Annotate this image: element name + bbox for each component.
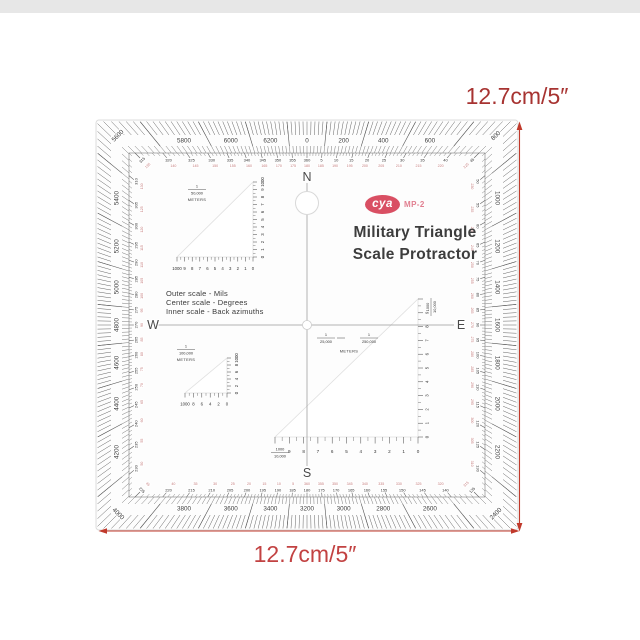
svg-text:1: 1: [196, 184, 198, 189]
svg-text:245: 245: [134, 401, 139, 408]
svg-text:350: 350: [332, 482, 338, 486]
svg-text:100,000: 100,000: [179, 351, 194, 356]
svg-text:285: 285: [134, 275, 139, 282]
svg-text:60: 60: [140, 418, 144, 422]
svg-text:180: 180: [304, 164, 310, 168]
svg-text:360: 360: [304, 482, 310, 486]
svg-text:5400: 5400: [114, 191, 121, 206]
svg-text:290: 290: [470, 382, 474, 388]
svg-text:35: 35: [420, 158, 425, 163]
east-label: E: [457, 318, 465, 332]
svg-text:280: 280: [134, 291, 139, 298]
svg-text:80: 80: [140, 352, 144, 356]
svg-text:255: 255: [470, 278, 474, 284]
svg-text:150: 150: [212, 164, 218, 168]
side-dimension-label: 12.7cm/5″: [457, 83, 577, 110]
svg-text:4800: 4800: [114, 318, 121, 333]
svg-text:METERS: METERS: [340, 349, 359, 354]
svg-text:155: 155: [230, 164, 236, 168]
svg-text:215: 215: [188, 488, 195, 493]
svg-text:145: 145: [193, 164, 199, 168]
svg-text:115: 115: [140, 245, 144, 251]
svg-text:50: 50: [140, 462, 144, 466]
svg-text:280: 280: [470, 351, 474, 357]
svg-text:205: 205: [378, 164, 384, 168]
svg-text:275: 275: [134, 306, 139, 313]
svg-text:55: 55: [476, 203, 481, 208]
svg-text:90: 90: [476, 323, 481, 328]
legend-outer-scale: Outer scale - Mils: [166, 289, 264, 298]
svg-text:195: 195: [259, 488, 266, 493]
svg-text:230: 230: [134, 464, 139, 471]
svg-text:320: 320: [438, 482, 444, 486]
svg-text:330: 330: [208, 158, 215, 163]
svg-text:210: 210: [208, 488, 215, 493]
svg-text:1000: 1000: [276, 447, 285, 452]
svg-text:0: 0: [417, 449, 420, 454]
svg-text:25: 25: [231, 482, 235, 486]
svg-text:3000: 3000: [337, 506, 352, 513]
legend-inner-scale: Inner scale - Back azimuths: [166, 307, 264, 316]
svg-text:320: 320: [165, 158, 172, 163]
svg-text:310: 310: [470, 461, 474, 467]
svg-text:235: 235: [134, 441, 139, 448]
svg-text:4200: 4200: [114, 444, 121, 459]
svg-text:1800: 1800: [494, 356, 501, 371]
svg-text:325: 325: [188, 158, 195, 163]
svg-text:25,000: 25,000: [320, 339, 333, 344]
svg-text:325: 325: [415, 482, 421, 486]
svg-text:20: 20: [365, 158, 370, 163]
svg-text:95: 95: [476, 338, 481, 343]
svg-text:145: 145: [419, 488, 426, 493]
svg-text:600: 600: [425, 138, 436, 145]
svg-text:165: 165: [348, 488, 355, 493]
svg-text:5800: 5800: [177, 138, 192, 145]
svg-text:METERS: METERS: [188, 197, 207, 202]
svg-text:165: 165: [261, 164, 267, 168]
svg-text:200: 200: [244, 488, 251, 493]
svg-text:2: 2: [388, 449, 391, 454]
brand-logo: cya MP-2: [365, 195, 425, 214]
svg-text:125: 125: [140, 206, 144, 212]
svg-text:2800: 2800: [376, 506, 391, 513]
svg-text:3600: 3600: [224, 506, 239, 513]
svg-text:15: 15: [262, 482, 266, 486]
svg-text:160: 160: [364, 488, 371, 493]
svg-text:185: 185: [289, 488, 296, 493]
svg-text:220: 220: [165, 488, 172, 493]
svg-text:40: 40: [171, 482, 175, 486]
svg-text:85: 85: [476, 308, 481, 313]
svg-text:1000: 1000: [180, 402, 190, 407]
svg-text:70: 70: [140, 383, 144, 387]
title-line-1: Military Triangle: [330, 222, 500, 244]
svg-text:230: 230: [470, 183, 474, 189]
svg-text:310: 310: [134, 177, 139, 184]
svg-text:290: 290: [134, 259, 139, 266]
svg-text:75: 75: [140, 367, 144, 371]
svg-text:265: 265: [134, 336, 139, 343]
svg-text:210: 210: [396, 164, 402, 168]
svg-text:330: 330: [396, 482, 402, 486]
svg-text:10: 10: [334, 158, 339, 163]
svg-text:260: 260: [134, 351, 139, 358]
svg-text:10,000: 10,000: [432, 300, 437, 313]
svg-text:15: 15: [349, 158, 354, 163]
svg-text:220: 220: [438, 164, 444, 168]
svg-text:5: 5: [345, 449, 348, 454]
svg-text:140: 140: [170, 164, 176, 168]
brand-model-label: MP-2: [404, 200, 425, 209]
svg-text:10,000: 10,000: [274, 454, 287, 459]
west-label: W: [147, 318, 159, 332]
svg-text:3200: 3200: [300, 506, 315, 513]
svg-text:6000: 6000: [224, 138, 239, 145]
svg-text:6200: 6200: [263, 138, 278, 145]
svg-text:8: 8: [302, 449, 305, 454]
svg-text:130: 130: [476, 465, 481, 472]
svg-text:METERS: METERS: [177, 357, 196, 362]
svg-text:1000: 1000: [425, 302, 430, 311]
svg-text:345: 345: [259, 158, 266, 163]
legend-center-scale: Center scale - Degrees: [166, 298, 264, 307]
svg-text:350: 350: [275, 158, 282, 163]
svg-text:9: 9: [288, 449, 291, 454]
svg-text:1000: 1000: [494, 191, 501, 206]
svg-text:175: 175: [290, 164, 296, 168]
svg-text:25: 25: [382, 158, 387, 163]
svg-text:360: 360: [304, 158, 311, 163]
scale-legend: Outer scale - Mils Center scale - Degree…: [166, 289, 264, 316]
svg-text:1000: 1000: [260, 177, 265, 187]
svg-text:3800: 3800: [177, 506, 192, 513]
svg-text:5000: 5000: [114, 280, 121, 295]
svg-text:200: 200: [362, 164, 368, 168]
svg-text:2000: 2000: [494, 397, 501, 412]
svg-text:0: 0: [305, 138, 309, 145]
svg-text:55: 55: [140, 439, 144, 443]
svg-text:5: 5: [292, 482, 294, 486]
svg-text:115: 115: [476, 402, 481, 409]
svg-text:270: 270: [470, 322, 474, 328]
svg-text:120: 120: [140, 227, 144, 233]
title-line-2: Scale Protractor: [330, 244, 500, 266]
svg-text:4: 4: [360, 449, 363, 454]
svg-text:295: 295: [470, 399, 474, 405]
svg-text:240: 240: [134, 420, 139, 427]
svg-text:340: 340: [244, 158, 251, 163]
svg-text:75: 75: [476, 277, 481, 282]
svg-text:250,000: 250,000: [362, 339, 377, 344]
svg-text:4400: 4400: [114, 396, 121, 411]
svg-text:10: 10: [277, 482, 281, 486]
svg-text:400: 400: [378, 138, 389, 145]
svg-text:6: 6: [331, 449, 334, 454]
svg-text:275: 275: [470, 336, 474, 342]
svg-text:215: 215: [415, 164, 421, 168]
svg-text:125: 125: [476, 441, 481, 448]
svg-text:95: 95: [140, 309, 144, 313]
svg-text:50: 50: [476, 179, 481, 184]
svg-text:250: 250: [134, 383, 139, 390]
svg-text:140: 140: [442, 488, 449, 493]
svg-text:1600: 1600: [494, 318, 501, 333]
svg-text:120: 120: [476, 420, 481, 427]
svg-text:155: 155: [381, 488, 388, 493]
product-image: 0200400600800100012001400160018002000220…: [0, 0, 640, 640]
svg-text:20: 20: [247, 482, 251, 486]
svg-text:355: 355: [289, 158, 296, 163]
svg-text:130: 130: [140, 183, 144, 189]
svg-text:110: 110: [476, 384, 481, 391]
svg-text:150: 150: [399, 488, 406, 493]
svg-text:30: 30: [400, 158, 405, 163]
svg-text:345: 345: [347, 482, 353, 486]
svg-text:7: 7: [317, 449, 320, 454]
svg-text:340: 340: [362, 482, 368, 486]
svg-text:295: 295: [134, 241, 139, 248]
svg-text:3400: 3400: [263, 506, 278, 513]
svg-text:1: 1: [402, 449, 405, 454]
svg-text:30: 30: [213, 482, 217, 486]
south-label: S: [303, 466, 311, 480]
product-title: Military Triangle Scale Protractor: [330, 222, 500, 266]
svg-text:305: 305: [470, 438, 474, 444]
svg-text:200: 200: [338, 138, 349, 145]
svg-text:110: 110: [140, 262, 144, 268]
svg-text:40: 40: [443, 158, 448, 163]
brand-logo-oval: cya: [365, 195, 400, 214]
svg-text:205: 205: [227, 488, 234, 493]
svg-text:35: 35: [194, 482, 198, 486]
svg-text:80: 80: [476, 293, 481, 298]
svg-text:355: 355: [318, 482, 324, 486]
bottom-dimension-label: 12.7cm/5″: [245, 541, 365, 568]
svg-text:285: 285: [470, 366, 474, 372]
svg-text:175: 175: [318, 488, 325, 493]
svg-text:100: 100: [140, 293, 144, 299]
svg-text:1000: 1000: [234, 353, 239, 363]
svg-text:105: 105: [476, 367, 481, 374]
svg-text:185: 185: [318, 164, 324, 168]
svg-text:1: 1: [325, 332, 327, 337]
north-label: N: [302, 170, 311, 184]
svg-text:90: 90: [140, 323, 144, 327]
svg-text:50,000: 50,000: [191, 191, 204, 196]
svg-text:195: 195: [347, 164, 353, 168]
svg-text:2200: 2200: [494, 445, 501, 460]
svg-text:335: 335: [378, 482, 384, 486]
svg-text:260: 260: [470, 293, 474, 299]
svg-text:65: 65: [140, 400, 144, 404]
svg-text:2600: 2600: [423, 506, 438, 513]
svg-text:235: 235: [470, 206, 474, 212]
svg-text:305: 305: [134, 201, 139, 208]
svg-text:180: 180: [304, 488, 311, 493]
svg-text:190: 190: [332, 164, 338, 168]
svg-text:255: 255: [134, 367, 139, 374]
svg-text:3: 3: [374, 449, 377, 454]
svg-text:4600: 4600: [114, 355, 121, 370]
svg-text:1000: 1000: [172, 266, 182, 271]
svg-text:1: 1: [368, 332, 370, 337]
svg-text:190: 190: [275, 488, 282, 493]
svg-text:335: 335: [227, 158, 234, 163]
svg-text:265: 265: [470, 308, 474, 314]
svg-text:300: 300: [134, 222, 139, 229]
svg-text:5200: 5200: [114, 239, 121, 254]
svg-text:85: 85: [140, 337, 144, 341]
svg-text:1: 1: [185, 344, 187, 349]
svg-text:300: 300: [470, 417, 474, 423]
svg-text:105: 105: [140, 278, 144, 284]
svg-text:160: 160: [246, 164, 252, 168]
svg-text:1400: 1400: [494, 280, 501, 295]
svg-text:170: 170: [333, 488, 340, 493]
svg-text:170: 170: [276, 164, 282, 168]
svg-text:270: 270: [134, 321, 139, 328]
svg-text:100: 100: [476, 352, 481, 359]
